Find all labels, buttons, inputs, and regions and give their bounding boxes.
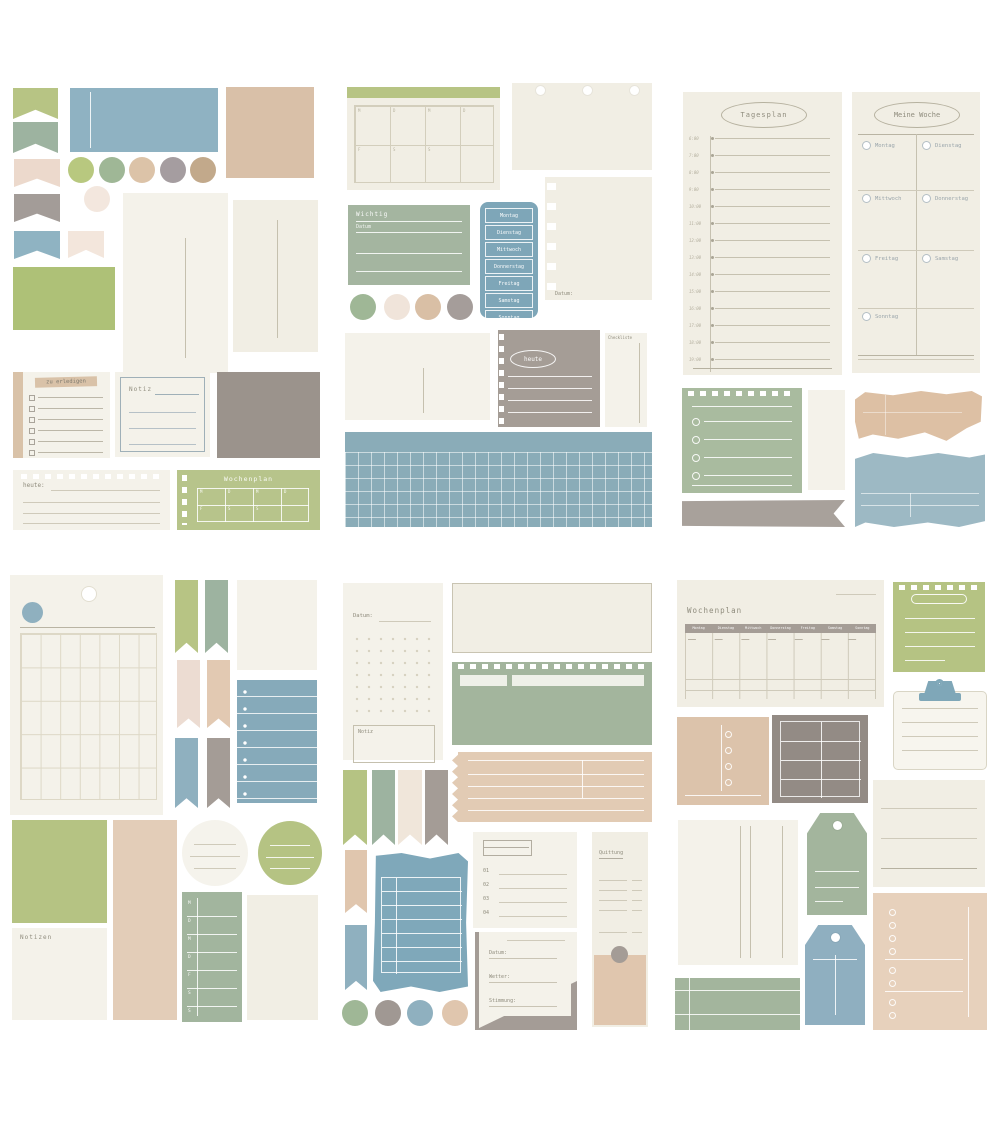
weekday-letter: S: [188, 991, 191, 996]
monthly-grid-page: [10, 575, 163, 815]
wochenplan-day: Dienstag: [712, 624, 739, 633]
circle-sticker-taupe: [447, 294, 473, 320]
circle-sticker-taupe: [375, 1000, 401, 1026]
notizen-title: Notizen: [20, 934, 52, 941]
circle-sticker-sage: [99, 157, 125, 183]
notizen-note: Notizen: [12, 928, 107, 1020]
planner-sticker-sheets-image: zu erledigen Notiz heute: Wochenplan: [0, 0, 1000, 1125]
ledger-note: [678, 820, 798, 965]
meine-woche-page: Meine Woche Montag Dienstag Mittwoch Don…: [852, 92, 980, 373]
dot-sticker-blue: [22, 602, 43, 623]
calendar-day-letter: M: [428, 108, 430, 113]
time-label: 9:00: [689, 187, 699, 192]
grid-strip-cream: [452, 583, 652, 653]
tan-checklist-note: [677, 717, 769, 805]
circle-sticker-taupe: [160, 157, 186, 183]
strip-lined-cream: [808, 390, 845, 490]
flag-banner-cream: [68, 231, 104, 258]
circle-note-green: [258, 821, 322, 885]
time-label: 17:00: [689, 323, 701, 328]
clipboard-clip-hole: [935, 679, 944, 688]
quittung-receipt: Quittung: [592, 832, 648, 1027]
numbered-list-note: 01 02 03 04: [473, 832, 577, 928]
week-cell: Dienstag: [922, 141, 962, 150]
tagesplan-title-oval: Tagesplan: [721, 102, 807, 128]
calendar-day-letter: F: [358, 147, 360, 152]
weekday-letter: D: [188, 955, 191, 960]
todo-card-spine: [13, 372, 23, 458]
wochenplan-title: Wochenplan: [687, 606, 742, 615]
wochenplan-header-row: Montag Dienstag Mittwoch Donnerstag Frei…: [685, 624, 876, 633]
gift-tag-sage: [807, 813, 867, 915]
heute-oval-label: heute: [510, 350, 556, 368]
weekday-tab: Freitag: [485, 276, 533, 291]
wochenplan-day: Freitag: [794, 624, 821, 633]
tagesplan-title: Tagesplan: [741, 111, 788, 119]
pennant-tan: [207, 660, 230, 728]
weekday-tab: Sonntag: [485, 310, 533, 325]
washi-flag-green: [343, 770, 367, 845]
heute-taupe-note: heute: [498, 330, 600, 427]
weekday-letter: S: [256, 506, 258, 511]
flag-banner-blush: [14, 159, 60, 187]
circle-sticker-tan: [129, 157, 155, 183]
wochenplan-day: Donnerstag: [767, 624, 794, 633]
notiz-card: Notiz: [115, 372, 210, 457]
list-number: 04: [483, 910, 489, 916]
weekday-tab: Donnerstag: [485, 259, 533, 274]
time-label: 16:00: [689, 306, 701, 311]
time-label: 19:00: [689, 357, 701, 362]
flag-blush-long: [345, 850, 367, 913]
green-label-note: [893, 582, 985, 672]
notiz-card-title: Notiz: [129, 386, 152, 393]
ribbon-banner-gray: [682, 500, 845, 527]
weekday-tab: Mittwoch: [485, 242, 533, 257]
checkliste-strip: Checkliste: [605, 333, 647, 427]
notiz-box: Notiz: [353, 725, 435, 763]
sage-strip-bottom: [675, 978, 800, 1030]
weekday-tab-stack: Montag Dienstag Mittwoch Donnerstag Frei…: [480, 202, 538, 318]
list-number: 03: [483, 896, 489, 902]
journal-datum: Datum:: [489, 950, 557, 959]
time-label: 6:00: [689, 136, 699, 141]
wichtig-title: Wichtig: [356, 211, 388, 218]
washi-grid-blue: [345, 432, 652, 527]
note-square-tan: [226, 87, 314, 178]
sticker-sheet-bottom-left: Notizen M D M D F S S: [0, 570, 335, 1040]
flag-banner-sage: [13, 122, 58, 153]
weekday-letter: S: [188, 1009, 191, 1014]
journal-card: Datum: Wetter: Stimmung:: [475, 932, 577, 1030]
checklist-note-green: [682, 388, 802, 493]
note-lined-table: [345, 333, 490, 420]
gift-tag-blue: [805, 925, 865, 1025]
weekday-letter: M: [200, 489, 202, 494]
circle-sticker-sage: [342, 1000, 368, 1026]
washi-flag-sage: [372, 770, 395, 845]
meine-woche-title: Meine Woche: [894, 111, 940, 119]
wochenplan-table: Wochenplan Montag Dienstag Mittwoch Donn…: [677, 580, 884, 707]
note-lined-small: [237, 580, 317, 670]
heute-note: heute:: [13, 470, 170, 530]
clipboard: [893, 677, 987, 770]
note-lined-right: [247, 895, 318, 1020]
sticker-sheet-bottom-middle: Datum: Notiz: [340, 570, 675, 1040]
calendar-day-letter: D: [393, 108, 395, 113]
time-label: 12:00: [689, 238, 701, 243]
sticker-sheet-top-left: zu erledigen Notiz heute: Wochenplan: [0, 80, 335, 540]
circle-sticker-sage: [350, 294, 376, 320]
week-cell: Mittwoch: [862, 194, 902, 203]
pennant-taupe: [207, 738, 230, 808]
mini-weekplan-title: Wochenplan: [177, 475, 320, 483]
monthly-calendar-card: M D M D F S S: [347, 87, 500, 190]
sticker-sheet-top-right: Tagesplan 6:00 7:00 8:00 9:00 10:00 11:0…: [675, 80, 1000, 540]
disc-bound-paper: Datum:: [545, 177, 652, 300]
circle-sticker-cream: [384, 294, 410, 320]
flag-banner-taupe: [14, 194, 60, 222]
white-label-long: [512, 675, 644, 686]
flag-banner-green: [13, 88, 58, 119]
calendar-day-letter: M: [358, 108, 360, 113]
wochenplan-day: Mittwoch: [740, 624, 767, 633]
note-lined-narrow: [233, 200, 318, 352]
circle-sticker-tan: [415, 294, 441, 320]
meine-woche-title-oval: Meine Woche: [874, 102, 960, 128]
calendar-day-letter: D: [463, 108, 465, 113]
blue-table-note: [373, 853, 468, 992]
note-green-lined: [12, 820, 107, 923]
time-label: 15:00: [689, 289, 701, 294]
paper-scrap-tan: [855, 390, 982, 443]
journal-stimmung: Stimmung:: [489, 998, 557, 1007]
white-label-small: [460, 675, 507, 686]
sage-label-strip: [452, 662, 652, 745]
weekday-letter: M: [188, 937, 191, 942]
weekday-letter: F: [188, 973, 191, 978]
sticker-sheet-top-middle: M D M D F S S Wichtig Datum Montag Diens…: [340, 80, 675, 540]
weekday-letter: D: [228, 489, 230, 494]
wochenplan-day: Samstag: [821, 624, 848, 633]
note-lined-tall: [123, 193, 228, 373]
disc-paper-datum-label: Datum:: [555, 291, 573, 297]
time-label: 13:00: [689, 255, 701, 260]
circle-sticker-green: [68, 157, 94, 183]
time-label: 10:00: [689, 204, 701, 209]
circle-note-cream: [182, 820, 248, 886]
weekday-letter: F: [200, 506, 202, 511]
weekday-letter: S: [228, 506, 230, 511]
wochenplan-day: Sonntag: [849, 624, 876, 633]
time-label: 18:00: [689, 340, 701, 345]
pin-dot-taupe: [611, 946, 628, 963]
weekday-tab: Samstag: [485, 293, 533, 308]
datum-label: Datum:: [353, 613, 373, 619]
week-cell: Samstag: [922, 254, 958, 263]
circle-sticker-tan: [442, 1000, 468, 1026]
note-cream-mid: [873, 780, 985, 887]
pennant-sage: [205, 580, 228, 653]
flag-banner-blue: [14, 231, 60, 259]
week-cell: Montag: [862, 141, 895, 150]
pennant-green: [175, 580, 198, 653]
calendar-day-letter: S: [393, 147, 395, 152]
week-cell: Sonntag: [862, 312, 898, 321]
weekday-strip-sage: M D M D F S S: [182, 892, 242, 1022]
weekday-tab: Montag: [485, 208, 533, 223]
heute-note-label: heute:: [23, 482, 45, 489]
circle-sticker-brown: [190, 157, 216, 183]
note-blue-dotted: [237, 680, 317, 803]
todo-card: zu erledigen: [13, 372, 110, 458]
list-number: 01: [483, 868, 489, 874]
pennant-blue: [175, 738, 198, 808]
weekday-letter: D: [284, 489, 286, 494]
time-label: 7:00: [689, 153, 699, 158]
time-label: 8:00: [689, 170, 699, 175]
wochenplan-day: Montag: [685, 624, 712, 633]
weekday-letter: M: [256, 489, 258, 494]
washi-grid-green: [13, 267, 115, 330]
tan-circle-list-note: [873, 893, 987, 1030]
weekday-tab: Dienstag: [485, 225, 533, 240]
time-label: 11:00: [689, 221, 701, 226]
washi-grid-tan-vertical: [113, 820, 177, 1020]
week-cell: Donnerstag: [922, 194, 968, 203]
paper-scrap-blue: [855, 453, 985, 527]
tagesplan-page: Tagesplan 6:00 7:00 8:00 9:00 10:00 11:0…: [683, 92, 842, 375]
taupe-grid-note: [772, 715, 868, 803]
calendar-day-letter: S: [428, 147, 430, 152]
time-label: 14:00: [689, 272, 701, 277]
washi-grid-taupe: [217, 372, 320, 458]
wichtig-note: Wichtig Datum: [348, 205, 470, 285]
calendar-header-strip: [347, 87, 500, 98]
pill-label-outline: [911, 594, 967, 604]
pinned-tan-card: [594, 955, 646, 1025]
datum-dotted-note: Datum: Notiz: [343, 583, 443, 760]
todo-card-tape-label: zu erledigen: [35, 376, 97, 388]
washi-flag-taupe: [425, 770, 448, 845]
quittung-title: Quittung: [599, 850, 623, 859]
pennant-blush: [177, 660, 200, 728]
weekday-letter: D: [188, 919, 191, 924]
wichtig-datum-label: Datum: [356, 224, 371, 230]
checkliste-title: Checkliste: [608, 335, 632, 340]
sticker-sheet-bottom-right: Wochenplan Montag Dienstag Mittwoch Donn…: [675, 570, 1000, 1040]
mini-weekplan-card: Wochenplan M D M D F S S: [177, 470, 320, 530]
note-blue-ledger: [70, 88, 218, 152]
list-number: 02: [483, 882, 489, 888]
clipboard-paper: [893, 691, 987, 770]
tan-table-note: [452, 752, 652, 822]
circle-sticker-blush: [84, 186, 110, 212]
week-cell: Freitag: [862, 254, 898, 263]
washi-flag-cream: [398, 770, 422, 845]
grid-paper-card: [512, 83, 652, 170]
weekday-letter: M: [188, 901, 191, 906]
journal-wetter: Wetter:: [489, 974, 557, 983]
circle-sticker-blue: [407, 1000, 433, 1026]
flag-blue-long: [345, 925, 367, 990]
